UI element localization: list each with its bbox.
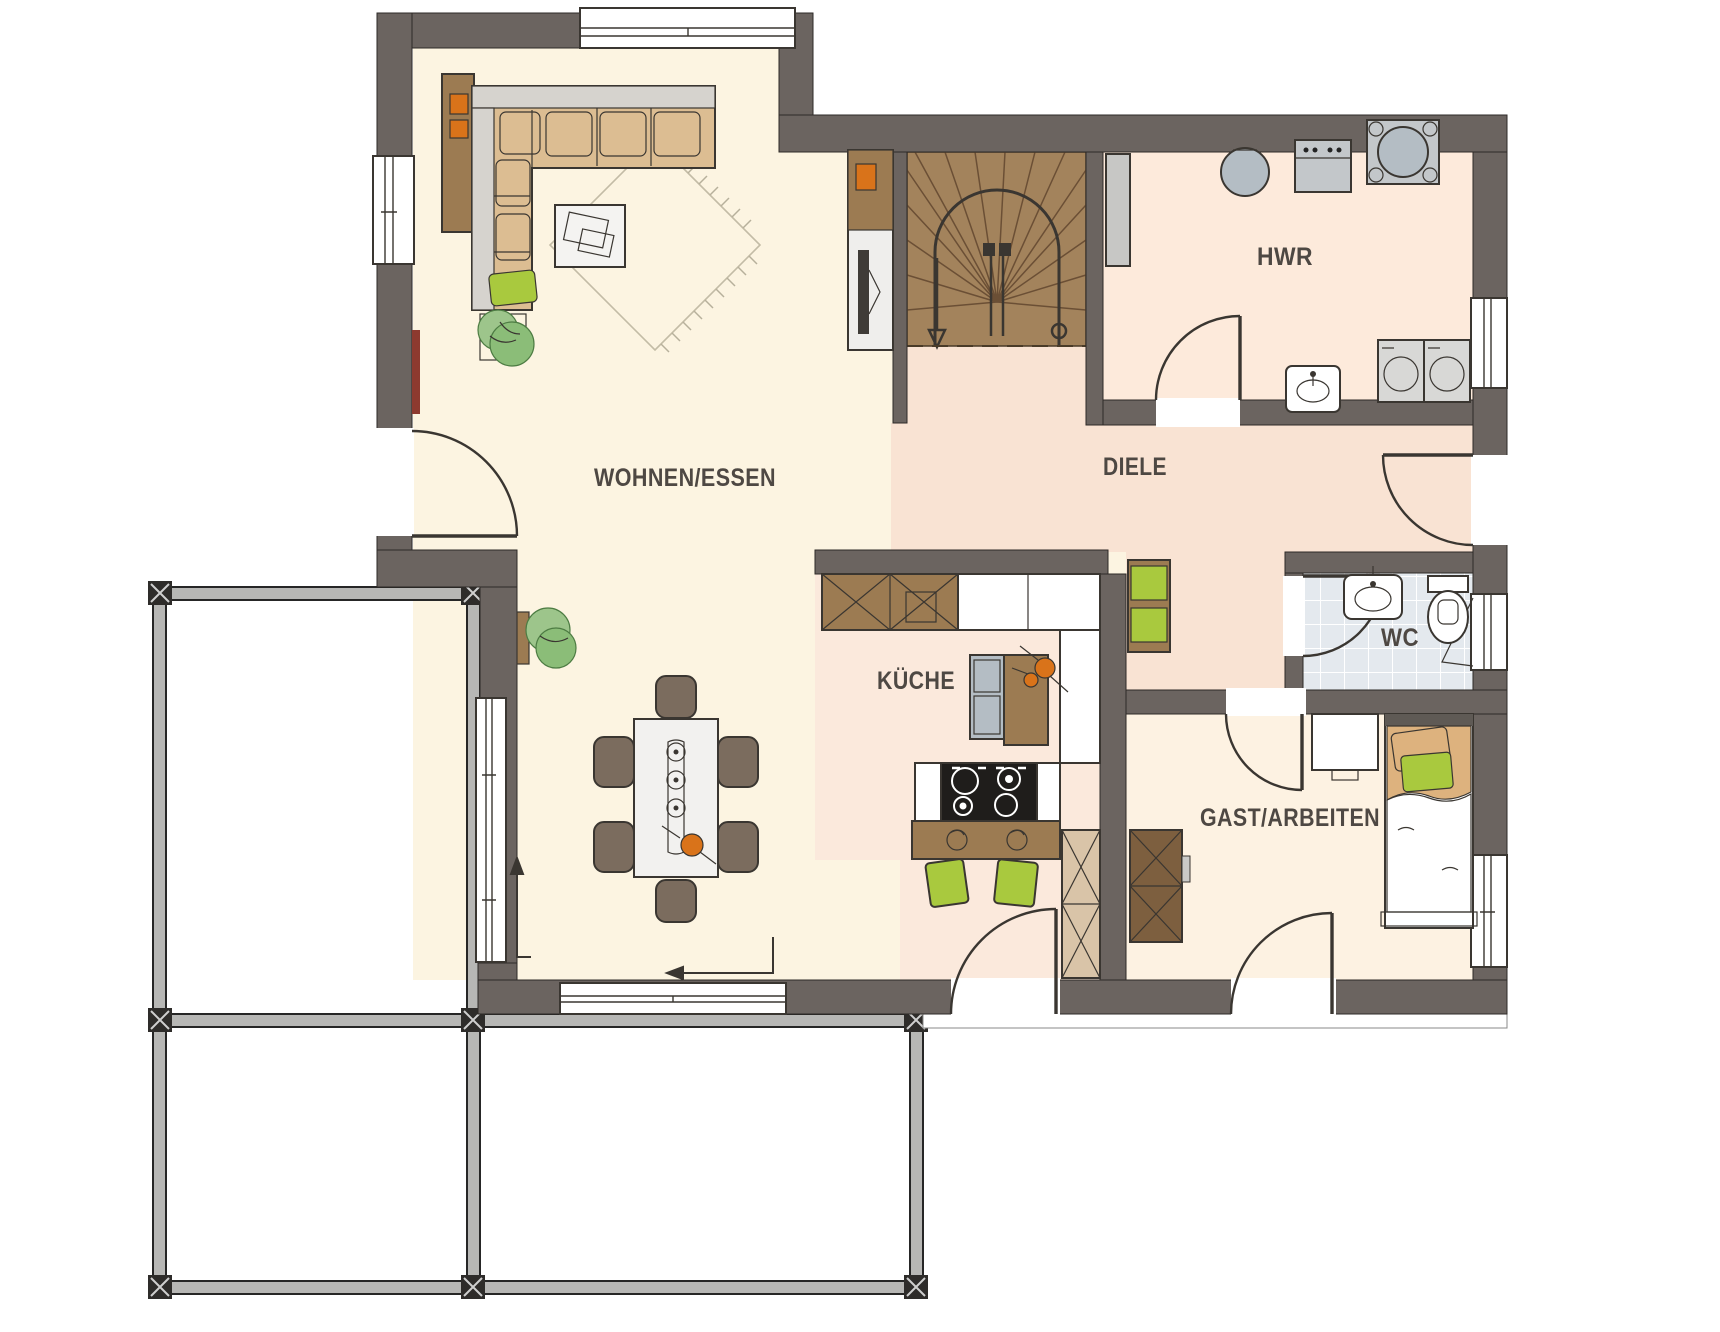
window-dining-left xyxy=(476,698,506,962)
stove xyxy=(915,763,1060,821)
sideboard xyxy=(442,74,474,232)
diele-furniture xyxy=(1128,560,1170,652)
wall-stair-left xyxy=(893,152,907,423)
kitchen-counter-right xyxy=(1060,630,1100,763)
floor-plan-drawing: WOHNEN/ESSEN DIELE HWR KÜCHE WC GAST/ARB… xyxy=(0,0,1720,1332)
window-gast-right xyxy=(1471,855,1507,967)
window-hwr-right xyxy=(1471,298,1507,388)
wall-stair-right xyxy=(1086,152,1103,425)
label-hwr: HWR xyxy=(1257,243,1313,271)
boiler xyxy=(1221,148,1269,196)
window-living-left xyxy=(373,156,414,264)
floor-plan-page: WOHNEN/ESSEN DIELE HWR KÜCHE WC GAST/ARB… xyxy=(0,0,1720,1332)
wall-left-step xyxy=(377,550,517,587)
tv-sideboard xyxy=(848,150,893,350)
toilet xyxy=(1428,576,1468,643)
kitchen-tall-cabinet-south xyxy=(1062,830,1100,978)
single-bed xyxy=(1381,714,1477,928)
staircase xyxy=(907,152,1086,347)
washer-dryer xyxy=(1378,340,1470,402)
kitchen-cabinets-top xyxy=(822,574,1100,630)
wall-kueche-top xyxy=(815,550,1108,574)
hwr-cabinet xyxy=(1106,154,1130,266)
wall-kueche-right xyxy=(1100,574,1126,980)
label-gast-arbeiten: GAST/ARBEITEN xyxy=(1200,804,1380,832)
wardrobe xyxy=(1130,830,1190,942)
heating-unit xyxy=(1295,140,1351,192)
label-wc: WC xyxy=(1381,624,1419,652)
coffee-table xyxy=(555,205,625,267)
hall-bench xyxy=(1128,560,1170,652)
window-terrace-slider xyxy=(560,983,786,1014)
label-kueche: KÜCHE xyxy=(877,666,955,695)
radiator xyxy=(412,330,420,414)
plinth-strip xyxy=(923,1014,1507,1028)
breakfast-bar xyxy=(912,821,1060,859)
utility-sink xyxy=(1286,366,1340,412)
label-diele: DIELE xyxy=(1103,453,1167,481)
window-living-top xyxy=(580,8,795,48)
wall-gast-top xyxy=(1126,690,1507,714)
desk xyxy=(1312,714,1378,780)
wall-wc-top xyxy=(1285,552,1473,573)
heat-pump xyxy=(1367,120,1439,184)
fridge xyxy=(970,655,1004,739)
label-wohnen-essen: WOHNEN/ESSEN xyxy=(594,464,776,492)
